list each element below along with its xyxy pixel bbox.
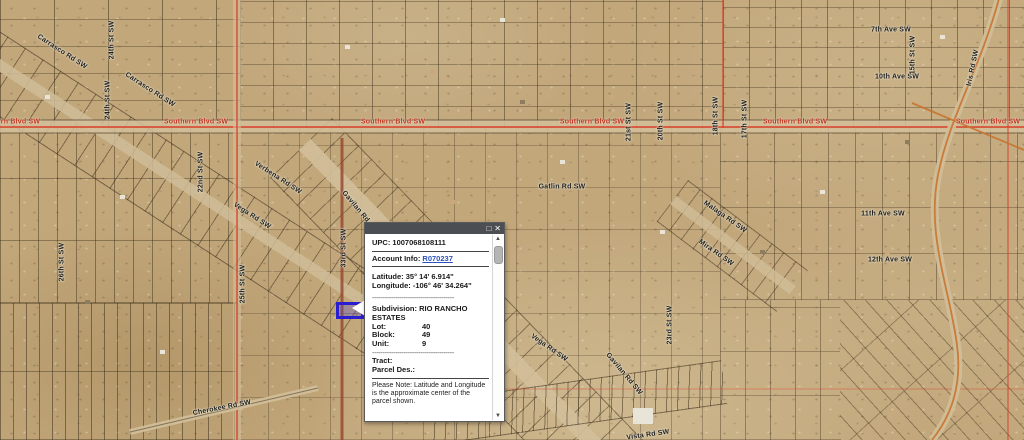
street-label: Gatlin Rd SW <box>539 184 586 191</box>
street-labels-layer: Southern Blvd SWSouthern Blvd SWSouthern… <box>0 0 1024 440</box>
account-link[interactable]: R070237 <box>422 254 452 263</box>
block-row: Block: 49 <box>372 331 490 340</box>
longitude-line: Longitude: -106° 46' 34.264" <box>372 282 490 291</box>
street-label: Vega Rd SW <box>232 201 272 230</box>
separator-rule <box>372 251 489 252</box>
street-label: Southern Blvd SW <box>0 119 40 126</box>
street-label: 24th St SW <box>109 21 116 60</box>
street-label: 20th St SW <box>658 102 665 141</box>
scroll-up-arrow-icon[interactable]: ▲ <box>493 236 503 242</box>
dashed-separator: --------------------------------------- <box>372 293 490 302</box>
street-label: Verbena Rd SW <box>253 160 302 195</box>
street-label: Southern Blvd SW <box>956 119 1020 126</box>
street-label: Southern Blvd SW <box>560 119 624 126</box>
street-label: 24th St SW <box>105 81 112 120</box>
street-label: 25th St SW <box>240 265 247 304</box>
street-label: Vista Rd SW <box>626 429 670 440</box>
street-label: 18th St SW <box>713 97 720 136</box>
popup-titlebar[interactable]: □ ✕ <box>365 223 504 234</box>
street-label: 11th Ave SW <box>861 211 905 218</box>
unit-value: 9 <box>422 340 426 349</box>
popup-scrollbar[interactable]: ▲ ▼ <box>492 235 503 420</box>
separator-rule <box>372 266 489 267</box>
street-label: Southern Blvd SW <box>164 119 228 126</box>
street-label: Cherokee Rd SW <box>192 399 251 417</box>
scrollbar-thumb[interactable] <box>494 246 503 264</box>
account-line: Account Info: R070237 <box>372 255 490 264</box>
note-text: Please Note: Latitude and Longitude is t… <box>372 382 490 407</box>
street-label: 26th St SW <box>59 243 66 282</box>
street-label: Carrasco Rd SW <box>124 71 176 108</box>
street-label: Malaga Rd SW <box>702 200 747 235</box>
parcel-des-line: Parcel Des.: <box>372 366 490 375</box>
scroll-down-arrow-icon[interactable]: ▼ <box>493 413 503 419</box>
upc-line: UPC: 1007068108111 <box>372 239 490 248</box>
account-label: Account Info: <box>372 254 420 263</box>
separator-rule <box>372 378 489 379</box>
street-label: 21st St SW <box>626 103 633 141</box>
street-label: 33rd St SW <box>341 229 348 268</box>
street-label: Mira Rd SW <box>697 238 735 267</box>
street-label: 23rd St SW <box>667 306 674 345</box>
unit-label: Unit: <box>372 340 422 349</box>
unit-row: Unit: 9 <box>372 340 490 349</box>
close-button[interactable]: ✕ <box>494 225 501 233</box>
parcel-info-popup: □ ✕ UPC: 1007068108111 Account Info: R07… <box>364 222 505 422</box>
street-label: 22nd St SW <box>198 152 205 193</box>
street-label: 12th Ave SW <box>868 257 912 264</box>
street-label: 10th Ave SW <box>875 74 919 81</box>
street-label: 15th St SW <box>910 36 917 75</box>
street-label: 7th Ave SW <box>871 27 911 34</box>
popup-body: UPC: 1007068108111 Account Info: R070237… <box>365 234 504 421</box>
street-label: Iris Rd SW <box>966 49 981 87</box>
street-label: Vega Rd SW <box>529 333 568 363</box>
street-label: Southern Blvd SW <box>361 119 425 126</box>
street-label: Carrasco Rd SW <box>36 33 88 70</box>
street-label: Gavilan Rd SW <box>604 352 643 397</box>
maximize-button[interactable]: □ <box>486 225 491 233</box>
subdivision-line: Subdivision: RIO RANCHO ESTATES <box>372 305 490 322</box>
map-canvas[interactable]: Southern Blvd SWSouthern Blvd SWSouthern… <box>0 0 1024 440</box>
street-label: Southern Blvd SW <box>763 119 827 126</box>
street-label: 17th St SW <box>742 100 749 139</box>
